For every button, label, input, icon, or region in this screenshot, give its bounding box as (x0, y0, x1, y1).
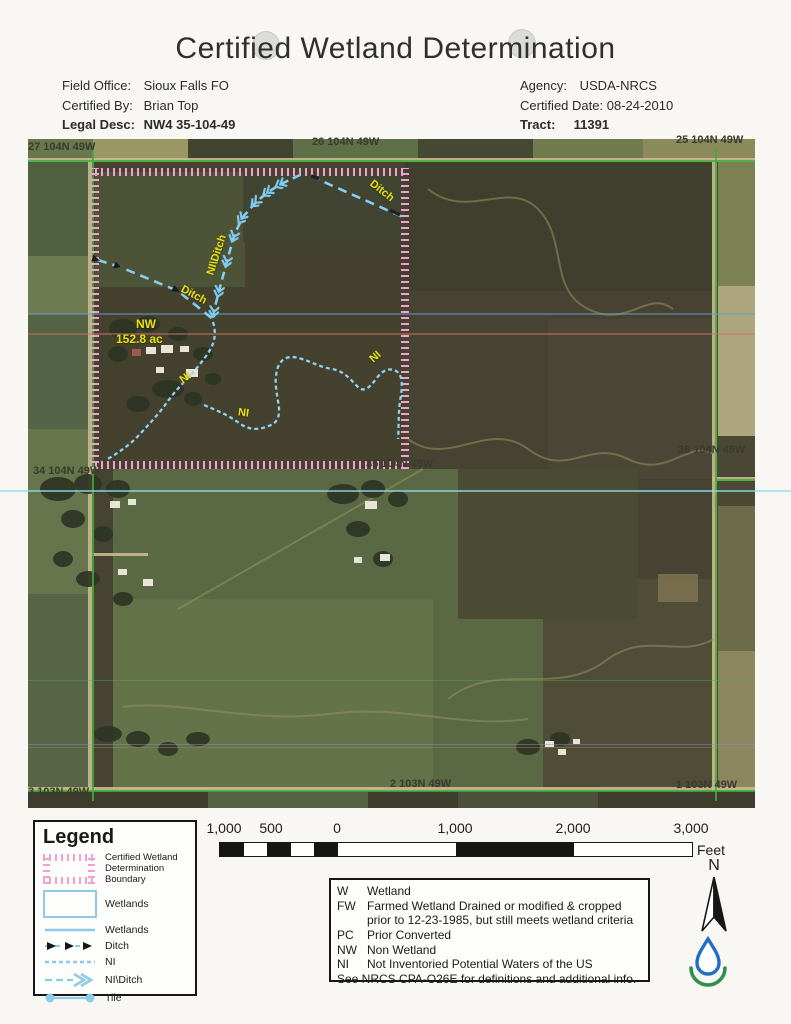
north-label: N (696, 857, 732, 875)
definition-text: Wetland (367, 884, 642, 899)
agency-label: Agency: (520, 78, 576, 93)
ni-label-mid: NI (237, 406, 250, 419)
page-title: Certified Wetland Determination (0, 32, 791, 66)
definition-text: Not Inventoried Potential Waters of the … (367, 957, 642, 972)
hydro-lines (28, 139, 755, 808)
scale-tick: 500 (259, 820, 282, 836)
certified-by-row: Certified By: Brian Top (62, 98, 198, 113)
area-acres-label: 152.8 ac (116, 332, 163, 346)
definition-code: W (337, 884, 367, 899)
ditch-symbol (43, 940, 97, 952)
definition-code: NW (337, 943, 367, 958)
scan-artifact-line (0, 490, 791, 492)
definition-code: FW (337, 899, 367, 928)
legend-item-label: Wetlands (105, 924, 149, 936)
tile-symbol (43, 992, 97, 1004)
ni-ditch-symbol (43, 972, 97, 988)
legend-item-ni: NI (43, 956, 189, 968)
conservation-logo (686, 936, 730, 995)
agency-value: USDA-NRCS (580, 78, 657, 93)
definition-row: FW Farmed Wetland Drained or modified & … (337, 899, 642, 928)
certified-wetland-determination-page: Certified Wetland Determination Field Of… (0, 0, 791, 1024)
certified-date-row: Certified Date: 08-24-2010 (520, 98, 673, 113)
definition-code: NI (337, 957, 367, 972)
tract-value: 11391 (574, 117, 609, 132)
field-office-row: Field Office: Sioux Falls FO (62, 78, 229, 93)
wetlands-polygon-symbol (43, 890, 97, 918)
certified-by-label: Certified By: (62, 98, 140, 113)
section-label: 25 104N 49W (676, 134, 743, 146)
boundary-symbol (43, 854, 95, 884)
legend-item-label: Certified Wetland Determination Boundary (105, 853, 189, 886)
legend-item-tile: Tile (43, 992, 189, 1004)
scale-tick: 1,000 (437, 820, 472, 836)
field-office-value: Sioux Falls FO (144, 78, 229, 93)
legend-title: Legend (43, 826, 189, 849)
section-label: 2 103N 49W (390, 778, 451, 790)
definition-row: NW Non Wetland (337, 943, 642, 958)
legend-item-label: Ditch (105, 940, 129, 952)
definition-text: Farmed Wetland Drained or modified & cro… (367, 899, 642, 928)
scale-unit-label: Feet (697, 842, 725, 858)
legend-item-ditch: Ditch (43, 940, 189, 952)
legend-item-label: Tile (105, 992, 122, 1004)
definition-code: PC (337, 928, 367, 943)
scale-tick: 0 (333, 820, 341, 836)
section-label: 36 104N 49W (678, 444, 745, 456)
area-code-label: NW (136, 317, 156, 331)
legend-item-boundary: Certified Wetland Determination Boundary (43, 853, 189, 886)
legend-item-ni-ditch: NI\Ditch (43, 972, 189, 988)
legend-item-label: Wetlands (105, 898, 149, 910)
legend-item-wetlands-area: Wetlands (43, 890, 189, 918)
definitions-footnote: See NRCS CPA-O26E for definitions and ad… (337, 972, 642, 987)
section-label: 1 103N 49W (676, 779, 737, 791)
scale-tick: 3,000 (673, 820, 708, 836)
scale-tick: 1,000 (206, 820, 241, 836)
section-label: 3 103N 49W (28, 786, 89, 798)
definitions-box: W Wetland FW Farmed Wetland Drained or m… (329, 878, 650, 982)
legend-box: Legend Certified Wetland Determination B… (33, 820, 197, 996)
water-drop-icon (686, 936, 730, 990)
section-label: 35 104N 49W (366, 458, 433, 470)
scale-bar: 1,000 500 0 1,000 2,000 3,000 Feet (200, 820, 760, 864)
tract-label: Tract: (520, 117, 570, 132)
legal-desc-value: NW4 35-104-49 (144, 117, 236, 132)
north-arrow: N (696, 857, 732, 940)
legend-item-wetlands-line: Wetlands (43, 924, 189, 936)
ni-symbol (43, 958, 97, 966)
legend-item-label: NI (105, 956, 116, 968)
definition-text: Prior Converted (367, 928, 642, 943)
section-label: 34 104N 49W (33, 465, 100, 477)
definition-row: NI Not Inventoried Potential Waters of t… (337, 957, 642, 972)
tract-row: Tract: 11391 (520, 117, 609, 132)
certified-date-value: 08-24-2010 (607, 98, 674, 113)
section-label: 26 104N 49W (312, 136, 379, 148)
scale-tick: 2,000 (555, 820, 590, 836)
definition-row: W Wetland (337, 884, 642, 899)
definition-text: Non Wetland (367, 943, 642, 958)
agency-row: Agency: USDA-NRCS (520, 78, 657, 93)
legend-item-label: NI\Ditch (105, 974, 142, 986)
wetlands-line-symbol (43, 925, 97, 935)
compass-needle-icon (696, 875, 732, 935)
certified-date-label: Certified Date: (520, 98, 603, 113)
certified-by-value: Brian Top (144, 98, 199, 113)
legal-desc-label: Legal Desc: (62, 117, 140, 132)
section-label: 27 104N 49W (28, 141, 95, 153)
legal-desc-row: Legal Desc: NW4 35-104-49 (62, 117, 235, 132)
definition-row: PC Prior Converted (337, 928, 642, 943)
aerial-wetland-map: Ditch NI\Ditch Ditch NW 152.8 ac NI NI N… (28, 139, 755, 808)
scale-bar-graphic (219, 842, 693, 857)
field-office-label: Field Office: (62, 78, 140, 93)
